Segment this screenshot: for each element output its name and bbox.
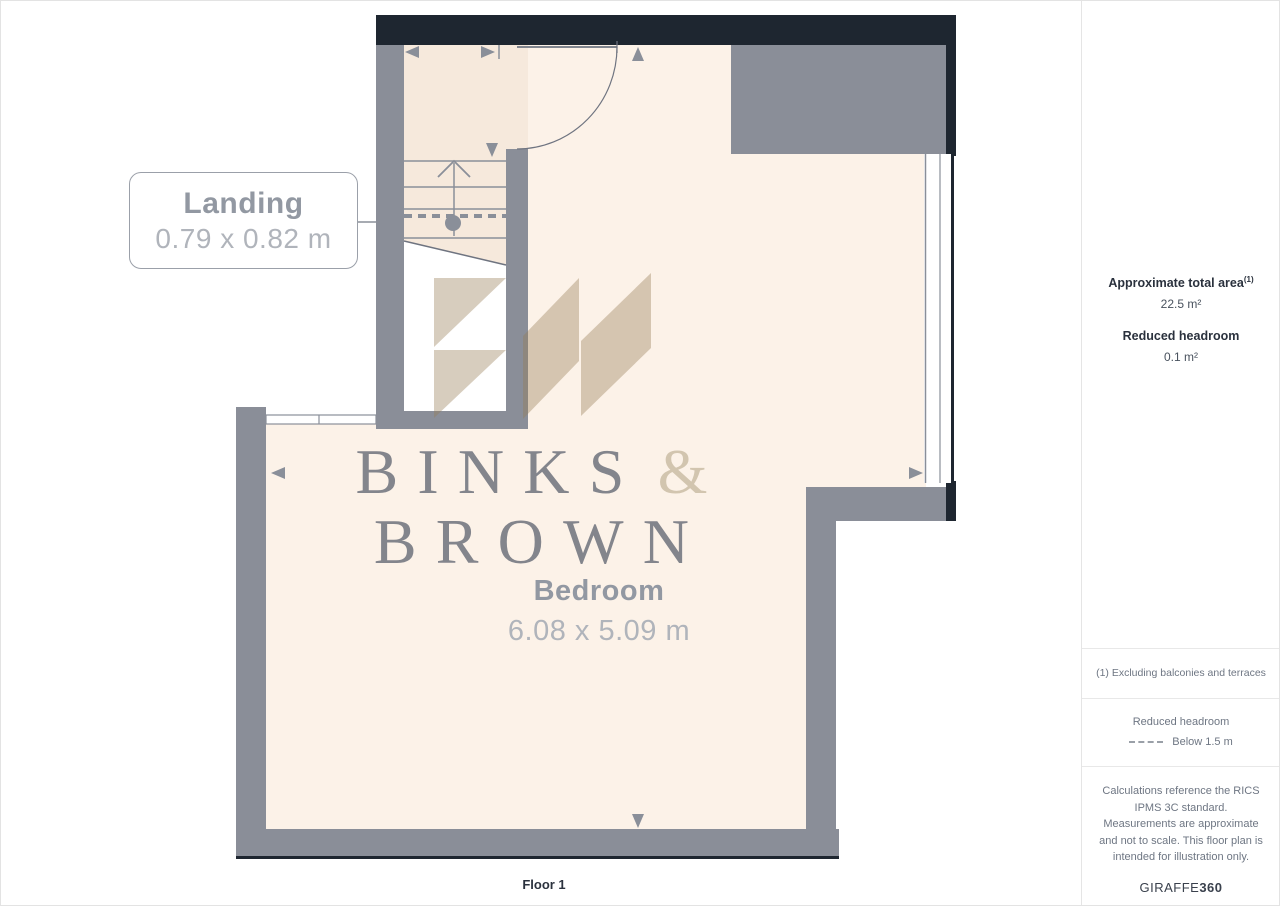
giraffe360-brand: GIRAFFE360 bbox=[1082, 880, 1280, 895]
sidebar-footer: Calculations reference the RICS IPMS 3C … bbox=[1082, 766, 1280, 895]
legend-item-label: Below 1.5 m bbox=[1172, 736, 1233, 748]
legend-title: Reduced headroom bbox=[1133, 716, 1230, 728]
total-area-label: Approximate total area(1) bbox=[1082, 275, 1280, 290]
reduced-headroom-label: Reduced headroom bbox=[1082, 329, 1280, 343]
total-area-value: 22.5 m² bbox=[1082, 297, 1280, 311]
info-sidebar: Approximate total area(1) 22.5 m² Reduce… bbox=[1081, 1, 1280, 906]
bedroom-label: Bedroom 6.08 x 5.09 m bbox=[399, 575, 799, 648]
area-footnote: (1) Excluding balconies and terraces bbox=[1082, 648, 1280, 698]
window-right bbox=[924, 154, 951, 483]
bedroom-dimensions: 6.08 x 5.09 m bbox=[399, 615, 799, 648]
landing-label: Landing 0.79 x 0.82 m bbox=[129, 172, 358, 269]
footnote-marker: (1) bbox=[1244, 275, 1254, 284]
window-left bbox=[266, 415, 376, 424]
disclaimer-text: Calculations reference the RICS IPMS 3C … bbox=[1082, 766, 1280, 866]
reduced-headroom-legend: Reduced headroom Below 1.5 m bbox=[1082, 698, 1280, 766]
floor-title: Floor 1 bbox=[444, 877, 644, 892]
floorplan-canvas: Landing 0.79 x 0.82 m BINKS& BROWN Bedro… bbox=[1, 1, 1081, 906]
brand-watermark: BINKS& BROWN bbox=[241, 437, 841, 578]
floorplan-page: Landing 0.79 x 0.82 m BINKS& BROWN Bedro… bbox=[0, 0, 1280, 906]
landing-dimensions: 0.79 x 0.82 m bbox=[155, 223, 331, 255]
bedroom-name: Bedroom bbox=[399, 575, 799, 608]
brand-watermark-line1: BINKS& bbox=[241, 437, 841, 507]
reduced-headroom-value: 0.1 m² bbox=[1082, 350, 1280, 364]
brand-ampersand: & bbox=[658, 436, 727, 507]
brand-watermark-line2: BROWN bbox=[241, 507, 841, 577]
landing-name: Landing bbox=[183, 187, 303, 221]
dashed-line-icon bbox=[1129, 741, 1163, 743]
area-summary: Approximate total area(1) 22.5 m² Reduce… bbox=[1082, 275, 1280, 364]
